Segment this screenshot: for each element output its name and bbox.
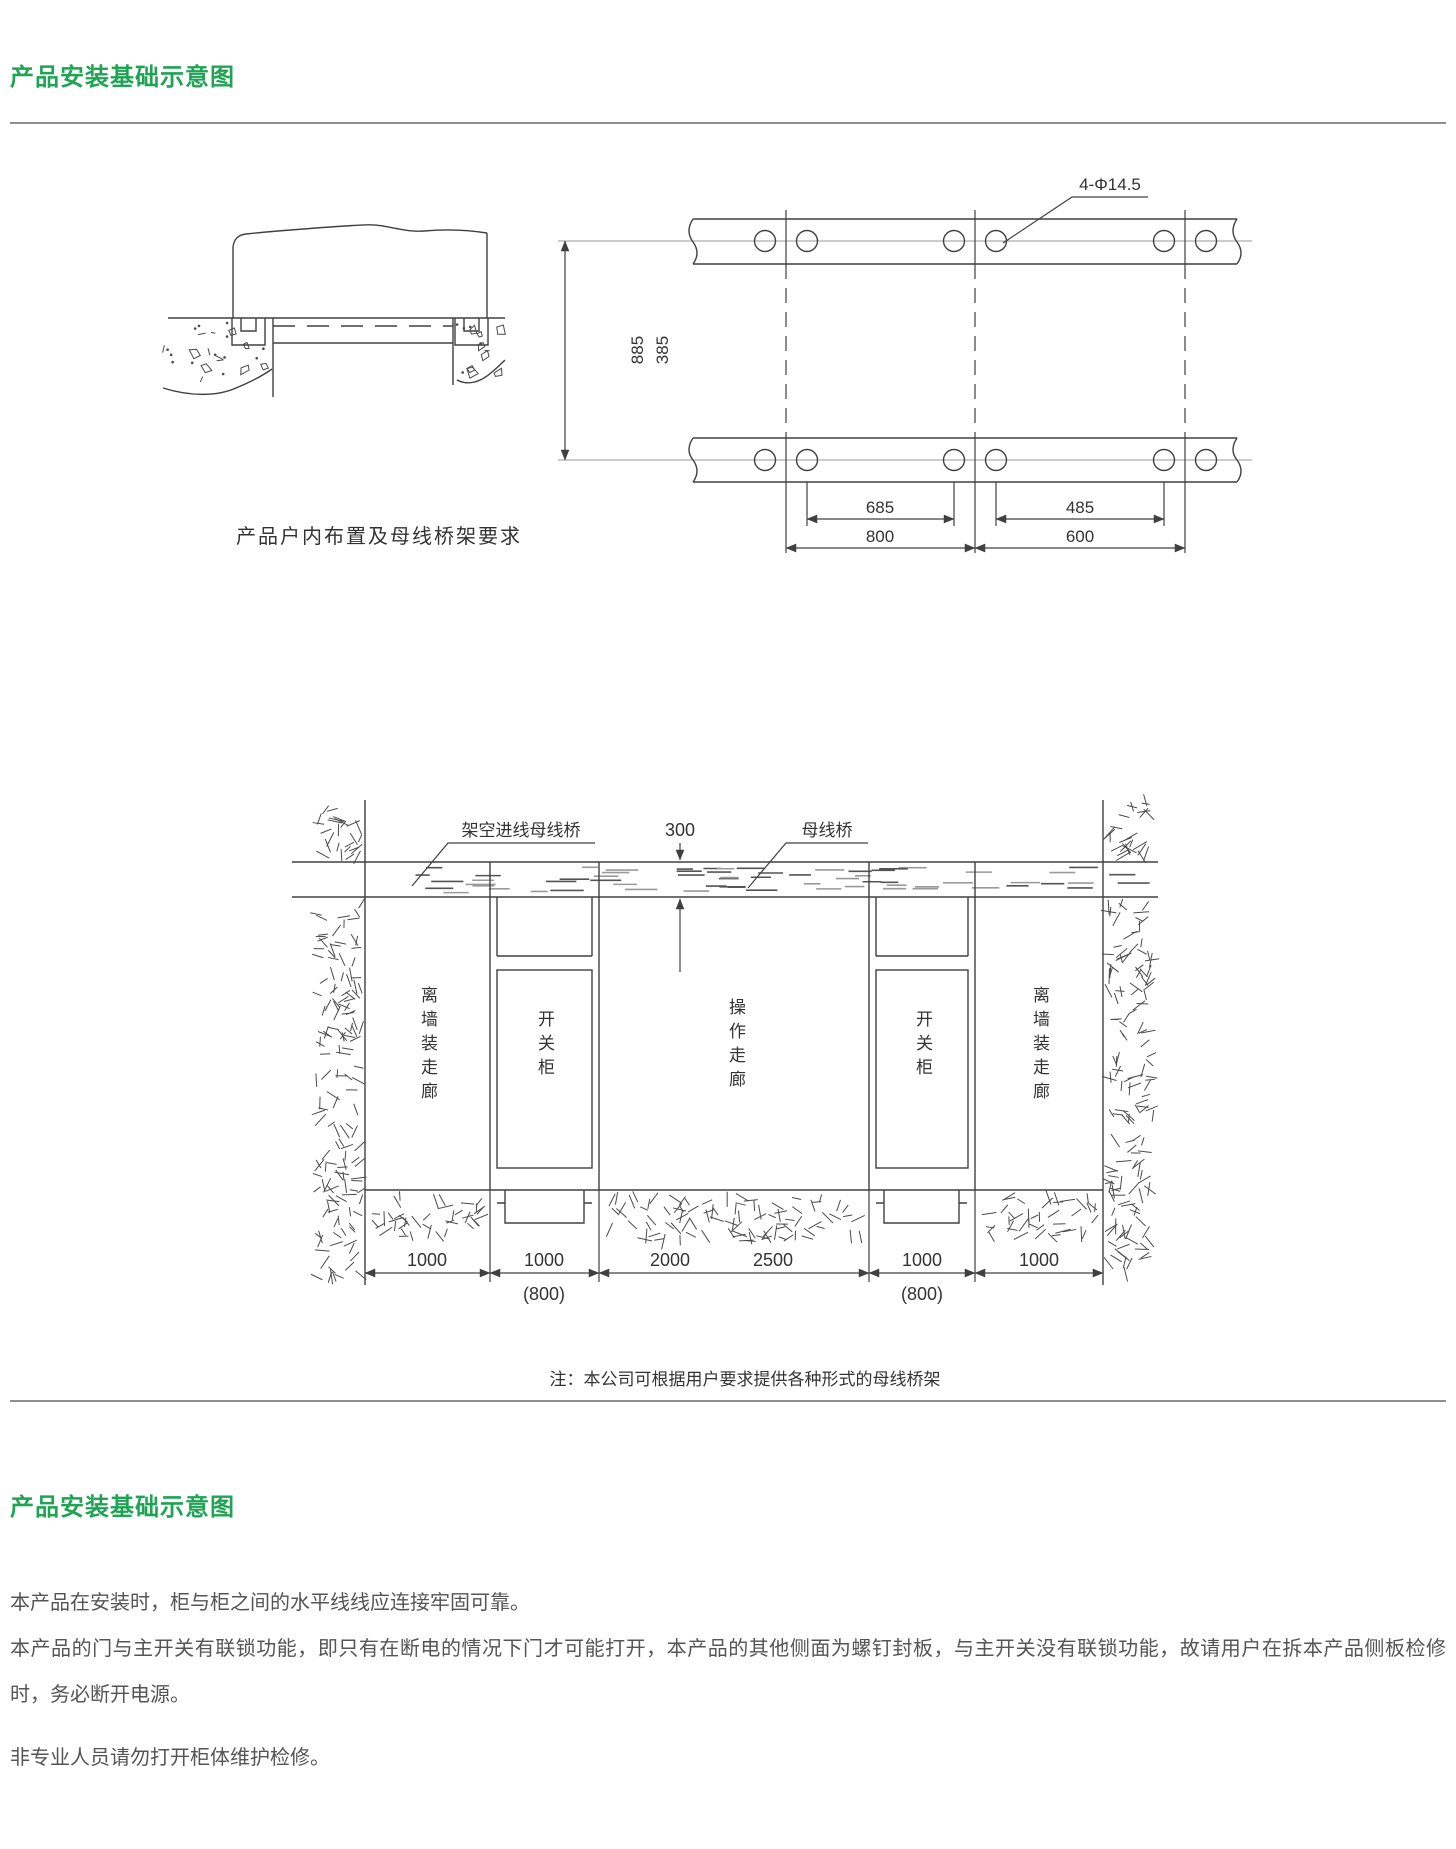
fixing-holes bbox=[755, 231, 1217, 471]
catalog-page: { "page": { "section1_title": "产品安装基础示意图… bbox=[0, 0, 1456, 1849]
holes-callout-label: 4-Φ14.5 bbox=[1079, 175, 1141, 194]
section2-title: 产品安装基础示意图 bbox=[10, 1487, 235, 1522]
indoor-cross-section-diagram bbox=[163, 225, 506, 397]
wall-hatch-right-top bbox=[1103, 794, 1154, 863]
dim-885: 885 bbox=[628, 336, 647, 364]
dim-2500: 2500 bbox=[753, 1250, 793, 1270]
dim-800-alt-right: (800) bbox=[901, 1284, 943, 1304]
bus-bridge-hatch bbox=[415, 867, 1149, 892]
dim-2000: 2000 bbox=[650, 1250, 690, 1270]
soil-hatch-middle bbox=[606, 1191, 864, 1249]
wall-hatch-left bbox=[310, 898, 366, 1284]
dim-800: 800 bbox=[866, 527, 894, 546]
concrete-hatch-right bbox=[456, 323, 505, 378]
dim-1000-d: 1000 bbox=[1019, 1250, 1059, 1270]
cross-section-caption: 产品户内布置及母线桥架要求 bbox=[236, 520, 522, 549]
overhead-bus-label: 架空进线母线桥 bbox=[462, 821, 581, 840]
install-paragraph-2: 本产品的门与主开关有联锁功能，即只有在断电的情况下门才可能打开，本产品的其他侧面… bbox=[10, 1626, 1446, 1718]
cabinet-left-label: 开关柜 bbox=[532, 1010, 557, 1082]
bus-bridge-label: 母线桥 bbox=[802, 821, 853, 840]
dim-1000-a: 1000 bbox=[407, 1250, 447, 1270]
dim-800-alt-left: (800) bbox=[523, 1284, 565, 1304]
dim-385: 385 bbox=[653, 336, 672, 364]
left-corridor-label: 离墙装走廊 bbox=[415, 986, 440, 1106]
busbar-bridge-plan-diagram: 685 485 800 600 4-Φ14.5 885 385 bbox=[558, 175, 1252, 553]
section-divider-bottom bbox=[10, 1400, 1446, 1402]
cabinet-right-label: 开关柜 bbox=[910, 1010, 935, 1082]
soil-hatch-right bbox=[982, 1190, 1098, 1242]
right-corridor-label: 离墙装走廊 bbox=[1027, 986, 1052, 1106]
dim-485: 485 bbox=[1066, 498, 1094, 517]
dim-300: 300 bbox=[665, 820, 695, 840]
install-paragraph-3: 非专业人员请勿打开柜体维护检修。 bbox=[10, 1735, 1446, 1781]
install-paragraph-1: 本产品在安装时，柜与柜之间的水平线线应连接牢固可靠。 bbox=[10, 1580, 1446, 1626]
soil-hatch-left bbox=[372, 1191, 488, 1241]
wall-hatch-left-top bbox=[313, 806, 363, 864]
operation-corridor-label: 操作走廊 bbox=[723, 998, 748, 1094]
dim-685: 685 bbox=[866, 498, 894, 517]
wall-hatch-right bbox=[1101, 899, 1159, 1281]
dim-1000-c: 1000 bbox=[902, 1250, 942, 1270]
elevation-note: 注：本公司可根据用户要求提供各种形式的母线桥架 bbox=[550, 1370, 941, 1389]
technical-drawings: 685 485 800 600 4-Φ14.5 885 385 bbox=[0, 0, 1456, 1849]
dim-1000-b: 1000 bbox=[524, 1250, 564, 1270]
dim-600: 600 bbox=[1066, 527, 1094, 546]
